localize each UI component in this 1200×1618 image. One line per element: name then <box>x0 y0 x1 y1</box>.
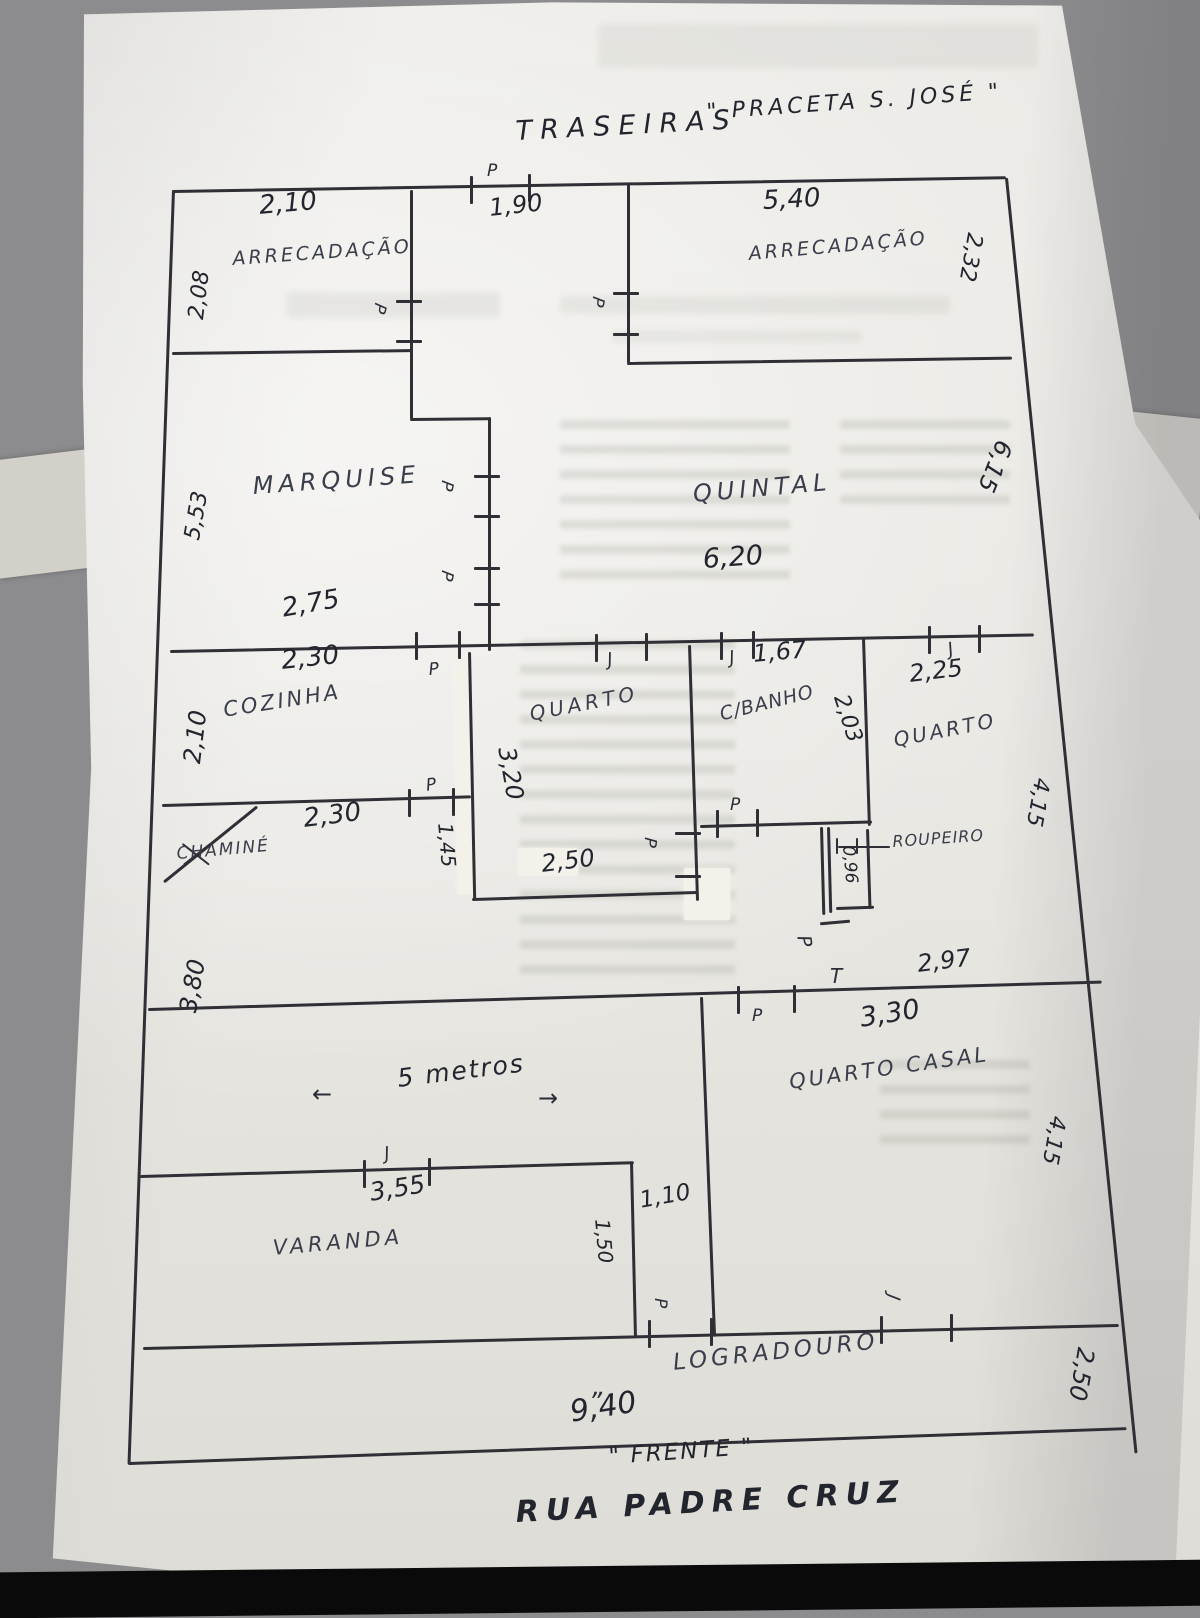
door-tick <box>710 1318 713 1346</box>
wall <box>630 1162 637 1337</box>
window-label: J <box>883 1293 902 1301</box>
door-tick <box>396 340 422 343</box>
storage-right-depth: 2,32 <box>955 231 985 283</box>
door-tick <box>756 809 759 837</box>
quintal-name: QUINTAL <box>692 470 832 506</box>
wall <box>468 652 476 899</box>
gate-width: 1,90 <box>488 190 544 219</box>
storage-left-depth: 2,08 <box>186 269 214 320</box>
door-label: P <box>793 934 814 949</box>
varanda-width: 3,55 <box>368 1171 427 1204</box>
wall <box>627 357 1012 365</box>
logradouro-name: LOGRADOURO <box>672 1330 880 1374</box>
door-label: P <box>436 479 455 492</box>
window-tick <box>720 632 723 660</box>
wardrobe-wall <box>827 827 832 913</box>
kitchen-name: COZINHA <box>222 681 342 720</box>
living-width-note: 5 metros <box>396 1050 526 1090</box>
wall <box>700 997 716 1337</box>
door-label: P <box>651 1298 668 1308</box>
street-name: RUA PADRE CRUZ <box>515 1478 906 1528</box>
wall <box>410 190 413 419</box>
rear-side-label: TRASEIRAS <box>515 106 738 145</box>
bedroom-right-name: QUARTO <box>892 710 998 749</box>
bath-width: 1,67 <box>752 637 807 666</box>
window-tick <box>978 625 981 653</box>
couple-bedroom-recuo: 2,97 <box>916 945 972 975</box>
varanda-depth: 1,50 <box>592 1218 616 1264</box>
floor-plan: TRASEIRAS " PRACETA S. JOSÉ " P 1,90 2,1… <box>0 0 1200 1600</box>
door-tick <box>675 832 701 835</box>
bedroom-right-depth: 4,15 <box>1022 776 1052 828</box>
window-tick <box>645 633 648 661</box>
couple-bedroom-depth: 4,15 <box>1038 1114 1068 1166</box>
couple-bedroom-width: 3,30 <box>858 996 922 1032</box>
wardrobe-width: 0,96 <box>839 845 859 884</box>
door-tick <box>458 631 461 659</box>
door-tick <box>470 176 473 204</box>
bedroom-center-depth: 3,20 <box>494 745 527 802</box>
arrow-left: ← <box>312 1082 332 1106</box>
door-tick <box>613 292 639 295</box>
front-width: 9,40 <box>568 1388 639 1428</box>
window-tick <box>363 1160 366 1188</box>
corridor-width: 1,10 <box>638 1181 692 1213</box>
door-tick <box>648 1320 651 1348</box>
window-tick <box>428 1158 431 1186</box>
door-label: P <box>428 661 440 679</box>
door-label: P <box>730 797 740 814</box>
marquise-width: 2,75 <box>280 586 342 622</box>
window-tick <box>950 1314 953 1342</box>
door-tick <box>793 985 796 1013</box>
wall <box>172 349 411 355</box>
wall <box>128 190 175 1464</box>
wardrobe-name: ROUPEIRO <box>892 828 985 850</box>
bedroom-center-width: 2,50 <box>540 845 596 875</box>
storage-left-width: 2,10 <box>258 188 318 219</box>
storage-right-name: ARRECADAÇÃO <box>748 229 929 264</box>
kitchen-width-bottom: 2,30 <box>302 799 363 832</box>
window-label: J <box>606 651 614 670</box>
wall <box>410 417 489 421</box>
kitchen-width-top: 2,30 <box>280 642 340 674</box>
marquise-name: MARQUISE <box>252 462 421 498</box>
wall <box>700 820 872 828</box>
door-label: P <box>425 777 438 795</box>
door-label: P <box>487 163 497 180</box>
wall <box>627 184 630 363</box>
front-label: " FRENTE " <box>608 1436 755 1469</box>
storage-right-width: 5,40 <box>762 185 821 214</box>
door-tick <box>613 333 639 336</box>
door-tick <box>452 788 455 816</box>
wall <box>148 981 1102 1011</box>
varanda-name: VARANDA <box>272 1227 404 1259</box>
door-label: P <box>369 301 388 315</box>
door-tick <box>408 789 411 817</box>
quintal-width: 6,20 <box>702 542 764 573</box>
bath-depth: 2,03 <box>829 692 865 745</box>
window-tick <box>880 1316 883 1344</box>
square-name-label: " PRACETA S. JOSÉ " <box>706 81 1003 124</box>
plot-side-depth: 2,50 <box>1065 1346 1098 1403</box>
bath-name: C/BANHO <box>718 683 816 725</box>
chimney-name: CHAMINÉ <box>176 838 271 863</box>
door-tick <box>737 986 740 1014</box>
door-tick <box>396 300 422 303</box>
wall <box>688 645 699 901</box>
wardrobe-wall <box>866 829 872 909</box>
door-label: P <box>640 837 658 849</box>
door-label: P <box>752 1008 762 1025</box>
wall <box>488 417 491 651</box>
door-tick <box>820 920 850 926</box>
door-tick <box>474 515 500 518</box>
marquise-depth: 5,53 <box>182 490 212 542</box>
bedroom-center-divider: 1,45 <box>435 822 459 868</box>
door-tick <box>716 810 719 838</box>
bedroom-center-name: QUARTO <box>528 683 640 724</box>
door-tick <box>474 567 500 570</box>
wall <box>472 891 698 901</box>
wardrobe-wall <box>836 906 874 910</box>
kitchen-depth: 2,10 <box>180 709 210 765</box>
quintal-depth: 6,15 <box>974 437 1016 496</box>
window-label: J <box>728 649 736 668</box>
couple-bedroom-name: QUARTO CASAL <box>788 1044 990 1093</box>
tee-mark: T <box>830 966 842 986</box>
bedroom-right-width: 2,25 <box>908 655 964 685</box>
wall <box>143 1324 1119 1350</box>
storage-left-name: ARRECADAÇÃO <box>232 237 412 268</box>
arrow-right: → <box>538 1086 558 1110</box>
door-tick <box>675 875 701 878</box>
window-tick <box>595 634 598 662</box>
door-tick <box>474 603 500 606</box>
window-label: J <box>383 1145 391 1164</box>
wardrobe-wall <box>820 827 825 915</box>
door-tick <box>474 475 500 478</box>
door-label: P <box>436 569 455 582</box>
window-tick <box>928 626 931 654</box>
door-tick <box>415 632 418 660</box>
door-label: P <box>587 295 606 308</box>
